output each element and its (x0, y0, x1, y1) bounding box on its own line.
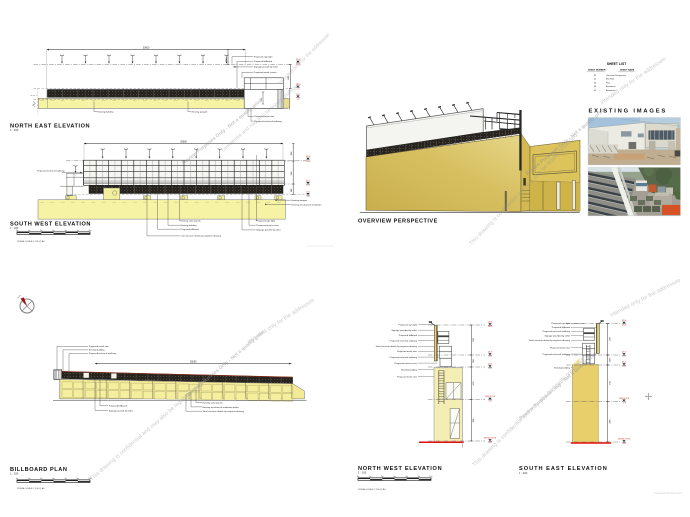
svg-text:Proposed metal screen: Proposed metal screen (256, 224, 279, 227)
svg-text:Proposed metal stair: Proposed metal stair (397, 375, 417, 378)
svg-text:Civil structure details by eng: Civil structure details by engineer draw… (181, 235, 222, 238)
svg-text:Existing building: Existing building (89, 349, 106, 352)
svg-text:+3.9: +3.9 (623, 366, 626, 368)
svg-text:Proposed technical walkway: Proposed technical walkway (543, 353, 571, 356)
svg-text:VISUAL SCALE 1:100 @ A0: VISUAL SCALE 1:100 @ A0 (17, 240, 45, 243)
svg-text:Proposed sign light: Proposed sign light (398, 323, 417, 326)
svg-text:Proposed sign light: Proposed sign light (256, 220, 275, 223)
svg-text:+4.75: +4.75 (622, 403, 626, 405)
svg-text:4750: 4750 (610, 381, 612, 385)
svg-text:Existing mechanical ventilatio: Existing mechanical ventilation (292, 203, 323, 206)
svg-text:1100: 1100 (291, 188, 293, 192)
svg-text:Proposed billboard: Proposed billboard (552, 326, 571, 329)
svg-text:VISUAL SCALE 1:100 @ A0: VISUAL SCALE 1:100 @ A0 (17, 487, 45, 490)
svg-text:128.20: 128.20 (306, 161, 311, 163)
svg-text:Proposed metal screen: Proposed metal screen (395, 362, 418, 365)
svg-text:+0.0: +0.0 (297, 99, 300, 101)
svg-text:Steel structure details by eng: Steel structure details by engineer draw… (203, 410, 245, 413)
svg-text:1100: 1100 (473, 359, 475, 363)
svg-text:3000: 3000 (473, 419, 475, 423)
svg-text:Existing building: Existing building (181, 224, 198, 227)
svg-text:Proposed technical walkway: Proposed technical walkway (390, 339, 418, 342)
svg-text:Signage provide by other: Signage provide by other (254, 66, 279, 69)
svg-text:30000: 30000 (190, 361, 197, 363)
svg-text:Proposed sign light: Proposed sign light (254, 55, 273, 58)
svg-text:Existing parapet: Existing parapet (192, 111, 208, 114)
svg-text:Generated with trial version: Generated with trial version (654, 492, 683, 495)
svg-text:Proposed billboard: Proposed billboard (399, 334, 418, 337)
svg-text:1100: 1100 (226, 58, 228, 62)
svg-text:4750: 4750 (473, 382, 475, 386)
svg-text:1 : 100: 1 : 100 (10, 128, 19, 132)
svg-text:1 : 100: 1 : 100 (10, 472, 19, 476)
svg-text:2600: 2600 (610, 337, 612, 341)
svg-text:30000: 30000 (143, 47, 150, 49)
svg-text:Elevations: Elevations (606, 85, 616, 88)
svg-text:BILLBOARD PLAN: BILLBOARD PLAN (10, 467, 67, 473)
svg-text:Existing building: Existing building (554, 366, 571, 369)
svg-text:SHEET NAME: SHEET NAME (620, 69, 635, 72)
svg-text:Signage provide by other: Signage provide by other (256, 229, 281, 232)
svg-text:Existing solar panels: Existing solar panels (181, 220, 202, 223)
svg-text:3000: 3000 (610, 420, 612, 424)
svg-text:SHEET NUMBER: SHEET NUMBER (588, 70, 606, 72)
svg-text:Proposed billboard: Proposed billboard (254, 60, 273, 63)
svg-text:Proposed metal stair: Proposed metal stair (89, 345, 109, 348)
svg-text:Signage provided by other: Signage provided by other (544, 334, 570, 337)
svg-text:SHEET LIST: SHEET LIST (607, 62, 628, 66)
svg-text:Proposed technical walkway: Proposed technical walkway (37, 170, 65, 173)
svg-text:Site Plan: Site Plan (606, 78, 615, 81)
svg-text:Signage provided by other: Signage provided by other (391, 329, 417, 332)
svg-text:+3.9: +3.9 (489, 368, 492, 370)
svg-text:1 : 100: 1 : 100 (358, 471, 367, 475)
svg-text:1100: 1100 (610, 358, 612, 362)
svg-text:1 : 100: 1 : 100 (519, 471, 528, 475)
svg-text:VISUAL SCALE 1:100 @ A0: VISUAL SCALE 1:100 @ A0 (358, 488, 386, 491)
svg-text:Proposed metal stair: Proposed metal stair (397, 350, 417, 353)
svg-text:Proposed technical walkway: Proposed technical walkway (89, 352, 117, 355)
svg-text:+4.75: +4.75 (488, 401, 492, 403)
svg-text:Proposed technical walkway: Proposed technical walkway (390, 356, 418, 359)
svg-text:128.20: 128.20 (488, 326, 493, 328)
svg-text:2600: 2600 (473, 338, 475, 342)
svg-text:Existing building: Existing building (401, 368, 418, 371)
svg-text:Proposed billboard: Proposed billboard (109, 405, 128, 408)
svg-text:+0.00: +0.00 (622, 443, 626, 445)
svg-text:Generated with trial version: Generated with trial version (307, 245, 334, 248)
svg-text:30000: 30000 (180, 141, 187, 143)
svg-text:+0.0: +0.0 (307, 196, 310, 198)
svg-text:SOUTH EAST ELEVATION: SOUTH EAST ELEVATION (519, 466, 608, 472)
svg-text:+5.1: +5.1 (489, 356, 492, 358)
svg-text:Steel structure details by eng: Steel structure details by engineer draw… (376, 345, 418, 348)
svg-text:Signage provide by other: Signage provide by other (109, 409, 134, 412)
svg-text:5100: 5100 (291, 172, 293, 176)
svg-text:Proposed metal stair: Proposed metal stair (550, 346, 570, 349)
svg-text:SOUTH WEST ELEVATION: SOUTH WEST ELEVATION (10, 221, 91, 227)
svg-text:Existing building: Existing building (98, 111, 115, 114)
svg-text:Existing mechanical ventilatio: Existing mechanical ventilation below (203, 406, 240, 409)
svg-text:Overview Perspective: Overview Perspective (606, 74, 627, 77)
svg-text:128.20: 128.20 (622, 325, 627, 327)
svg-text:1100: 1100 (291, 152, 293, 156)
svg-text:Existing solar panels: Existing solar panels (203, 402, 224, 405)
svg-text:NORTH WEST ELEVATION: NORTH WEST ELEVATION (358, 466, 442, 472)
svg-text:Proposed metal screen: Proposed metal screen (254, 71, 277, 74)
svg-text:Existing parapet: Existing parapet (292, 199, 308, 202)
svg-text:NORTH EAST ELEVATION: NORTH EAST ELEVATION (10, 124, 90, 130)
svg-text:Steel structure details by eng: Steel structure details by engineer draw… (529, 339, 571, 342)
svg-text:+5.1: +5.1 (307, 185, 310, 187)
svg-text:OVERVIEW PERSPECTIVE: OVERVIEW PERSPECTIVE (358, 218, 438, 224)
svg-text:+5.1: +5.1 (623, 356, 626, 358)
svg-text:Proposed technical walkway: Proposed technical walkway (543, 330, 571, 333)
svg-text:Proposed billboard: Proposed billboard (181, 228, 200, 231)
